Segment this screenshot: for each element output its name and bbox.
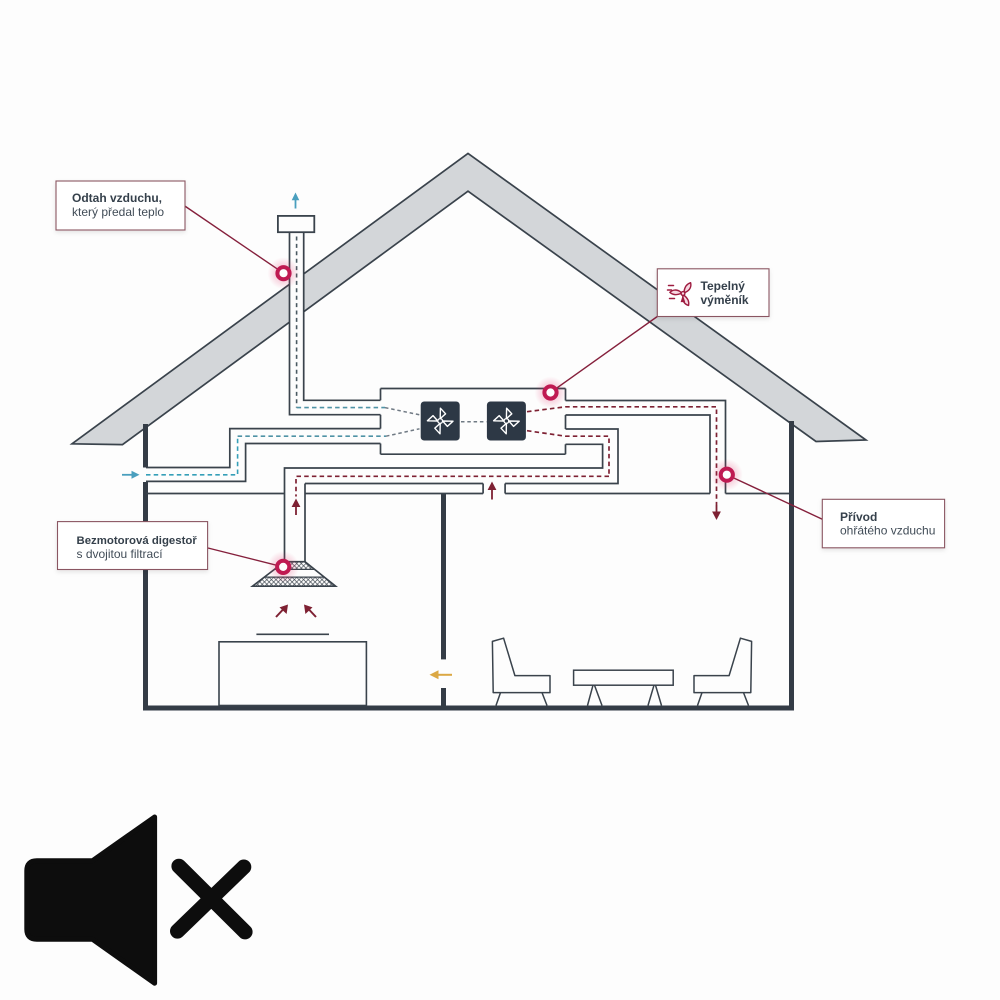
svg-text:Bezmotorová digestoř: Bezmotorová digestoř	[77, 535, 198, 547]
svg-text:ohřátého vzduchu: ohřátého vzduchu	[840, 524, 935, 538]
svg-text:Odtah vzduchu,: Odtah vzduchu,	[72, 191, 162, 205]
svg-text:výměník: výměník	[701, 293, 749, 307]
svg-text:Přívod: Přívod	[840, 510, 877, 524]
svg-text:s dvojitou filtrací: s dvojitou filtrací	[77, 547, 164, 561]
svg-text:Tepelný: Tepelný	[701, 279, 746, 293]
svg-text:který předal teplo: který předal teplo	[72, 205, 164, 219]
